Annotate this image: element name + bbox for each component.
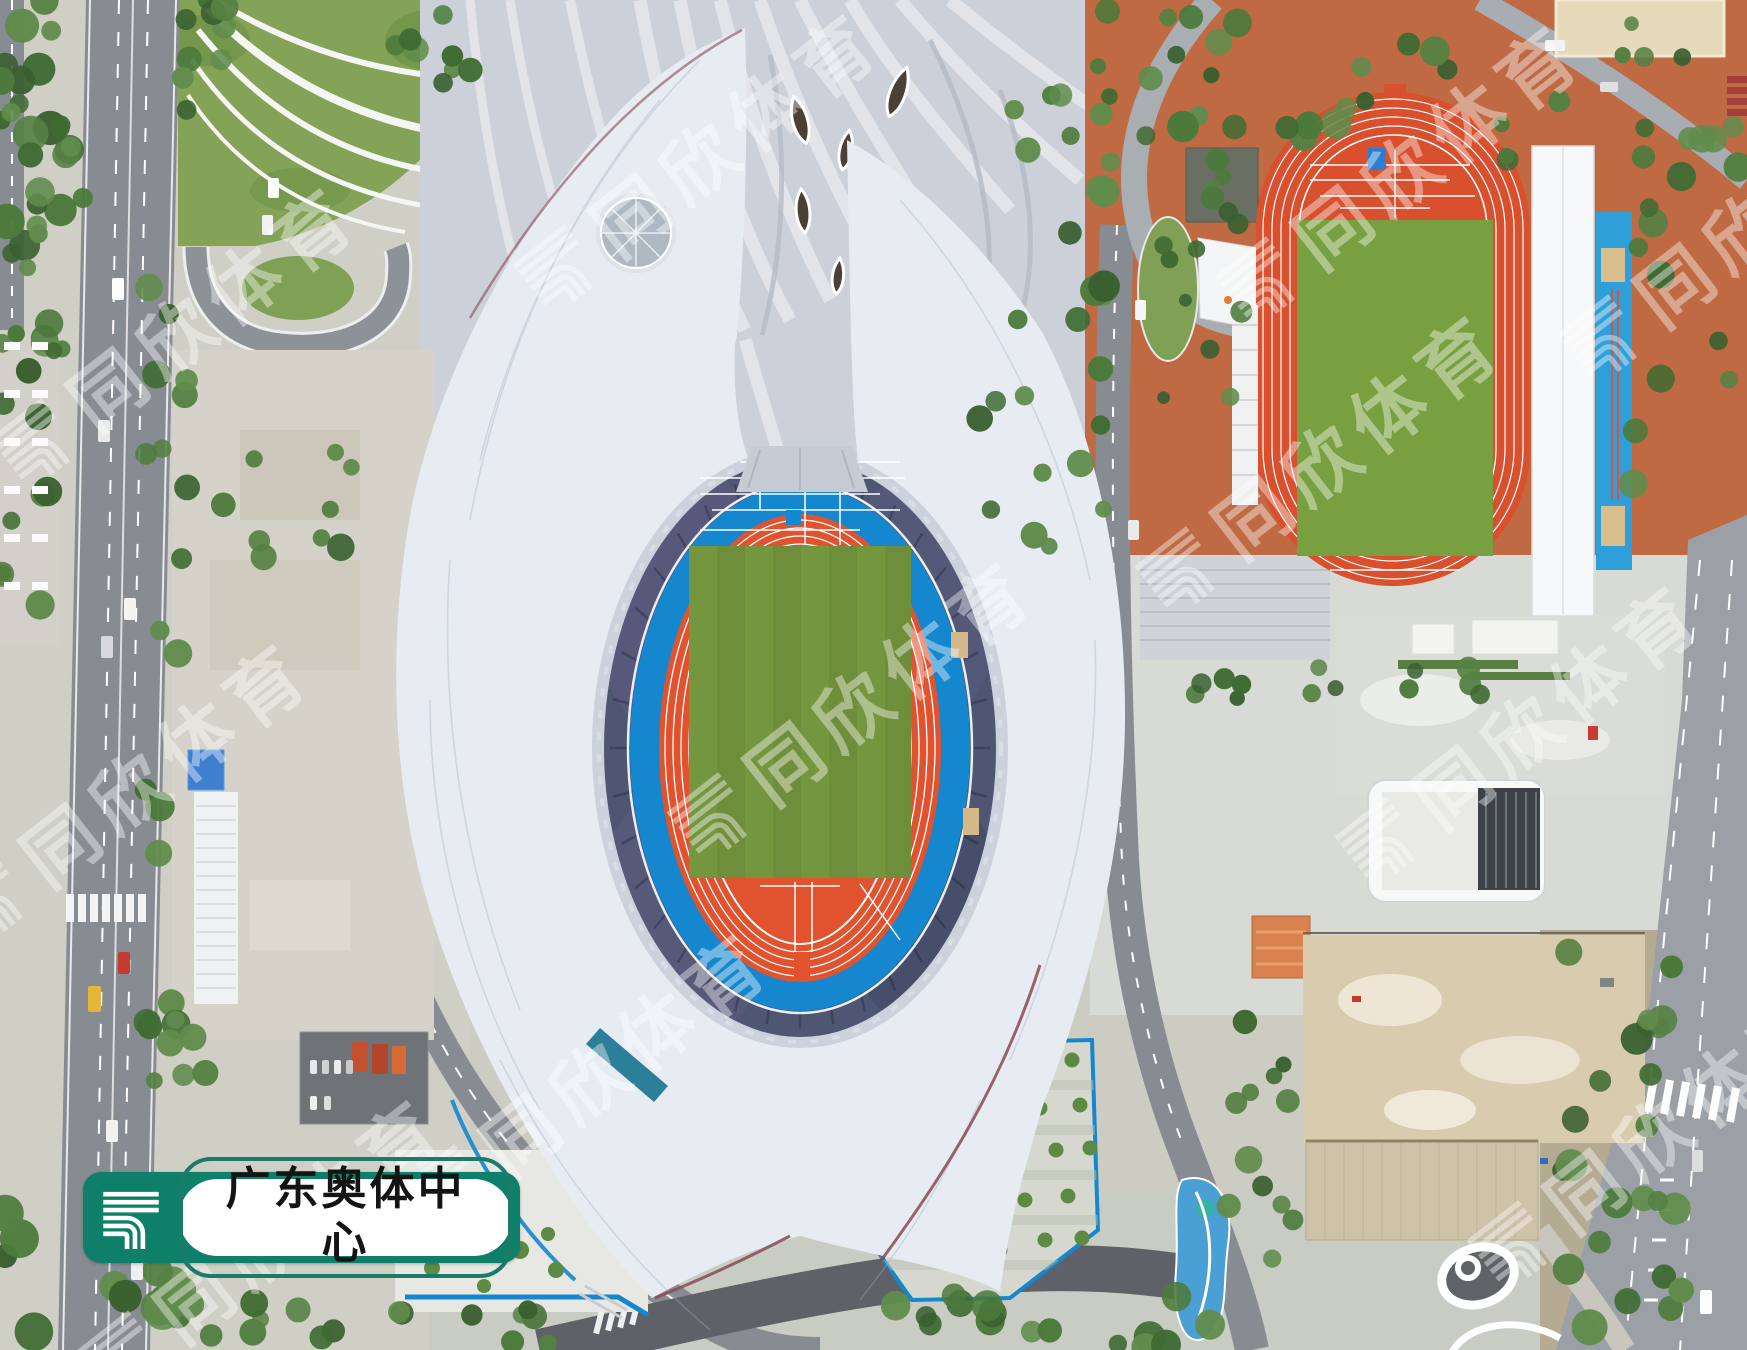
vehicle [334,1060,341,1074]
vehicle [322,1060,329,1074]
vehicle [1545,40,1565,51]
vehicle [262,215,273,235]
blue-shed [188,750,224,790]
long-jump-runway [1596,212,1632,570]
vehicle [1692,1150,1703,1172]
aerial-screenshot: 同欣体育同欣体育同欣体育同欣体育同欣体育同欣体育同欣体育同欣体育同欣体育同欣体育… [0,0,1747,1350]
vehicle [392,1046,406,1074]
high-jump-mat [786,510,801,525]
north-entrance [736,446,868,492]
badge-pill: 广东奥体中心 [179,1179,512,1256]
tan-roof-hall [1306,1140,1538,1240]
white-sheds [194,792,238,1004]
aerial-scene [0,0,1747,1350]
vehicle [346,1060,353,1074]
tongxin-t-logo-icon [83,1172,179,1263]
vehicle [106,1120,118,1142]
orange-building [1252,916,1310,978]
beige-court [1556,0,1724,56]
vehicle [98,420,110,442]
dome-skylight [596,193,676,273]
vehicle [1600,82,1618,92]
vehicle [352,1042,368,1072]
badge-outline: 广东奥体中心 [179,1157,512,1278]
vehicle [1135,300,1146,320]
vehicle [310,1060,317,1074]
vehicle [372,1044,388,1074]
vehicle [112,278,124,300]
vehicle [88,986,101,1012]
badge-label: 广东奥体中心 [225,1163,465,1268]
gym-building [1368,780,1545,902]
stepped-plaza [1140,556,1330,660]
vehicle [1128,520,1139,540]
vehicle [101,636,113,658]
vehicle [124,598,136,620]
crosswalk [66,894,146,922]
red-truck [1588,726,1598,740]
vehicle [1700,1290,1712,1314]
training-grandstand [1232,305,1258,505]
vehicle [310,1096,317,1110]
stadium-bowl [590,448,1008,1050]
training-track-complex [1232,84,1632,616]
vehicle [118,952,130,974]
blue-mat [1368,148,1386,170]
location-badge: 广东奥体中心 [83,1172,520,1263]
vehicle [268,178,279,198]
vehicle [324,1096,331,1110]
training-field [1297,220,1493,556]
